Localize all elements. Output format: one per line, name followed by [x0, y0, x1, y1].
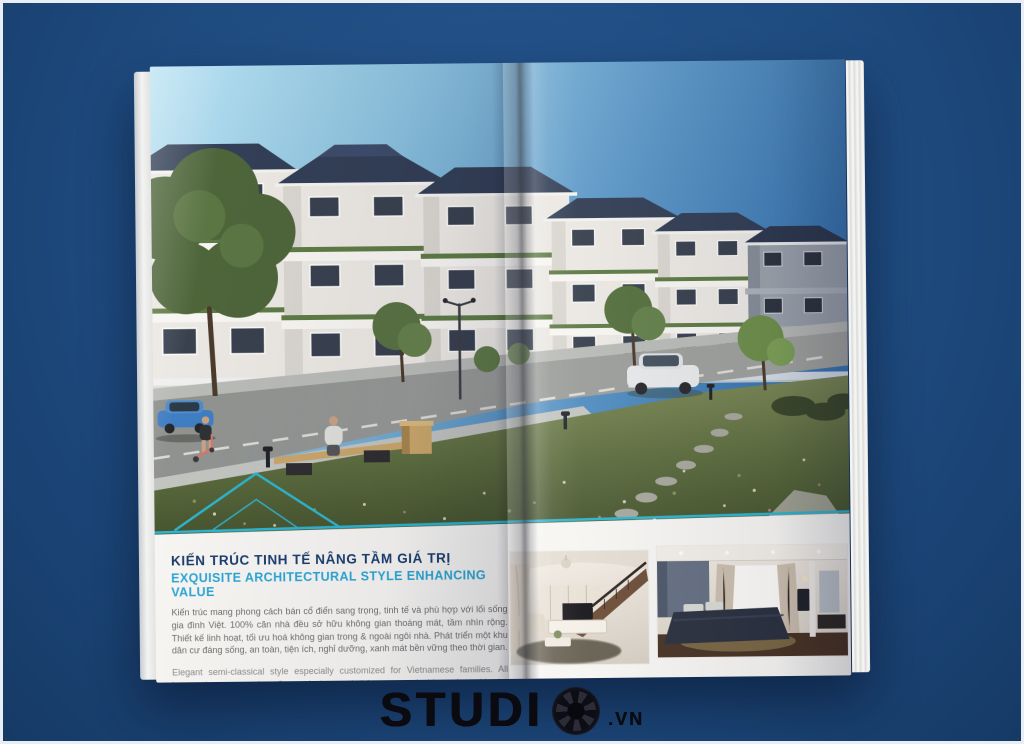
logo-brand-text: STUDI [380, 687, 544, 735]
brochure-spread: KIẾN TRÚC TINH TẾ NÂNG TẦM GIÁ TRỊ EXQUI… [150, 59, 851, 682]
interior-photo-living-room [510, 550, 649, 664]
architecture-section: KIẾN TRÚC TINH TẾ NÂNG TẦM GIÁ TRỊ EXQUI… [171, 550, 509, 683]
section-title-vietnamese: KIẾN TRÚC TINH TẾ NÂNG TẦM GIÁ TRỊ [171, 550, 507, 569]
brochure-book: KIẾN TRÚC TINH TẾ NÂNG TẦM GIÁ TRỊ EXQUI… [134, 59, 870, 685]
section-title-english: EXQUISITE ARCHITECTURAL STYLE ENHANCING … [171, 568, 507, 600]
mockup-stage: KIẾN TRÚC TINH TẾ NÂNG TẦM GIÁ TRỊ EXQUI… [0, 0, 1024, 744]
body-paragraph-vietnamese: Kiến trúc mang phong cách bán cổ điển sa… [171, 603, 508, 658]
interior-photo-bedroom [657, 544, 848, 657]
aperture-icon [553, 688, 599, 734]
studio-logo: STUDI .VN [3, 687, 1021, 735]
body-paragraph-english: Elegant semi-classical style especially … [172, 663, 508, 683]
hero-rendering-villa-neighborhood [150, 59, 850, 536]
logo-domain-text: .VN [608, 709, 644, 730]
